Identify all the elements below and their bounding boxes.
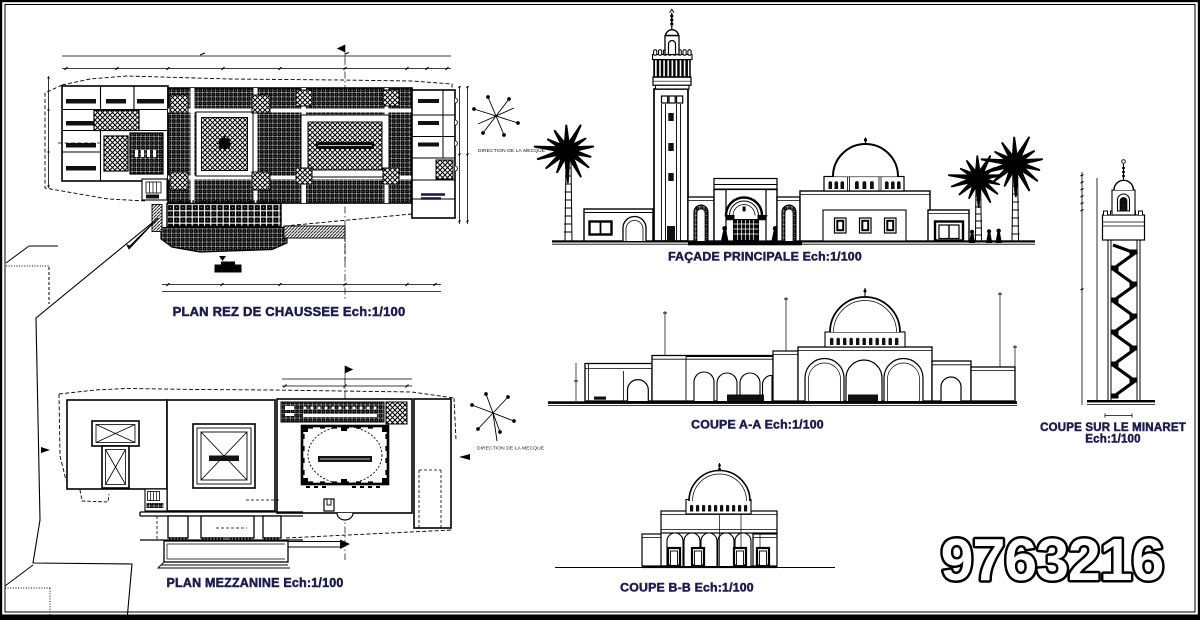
svg-text:9763216: 9763216	[941, 527, 1164, 593]
svg-text:Ech:1/100: Ech:1/100	[1085, 434, 1141, 446]
svg-text:DIRECTION DE LA MECQUE: DIRECTION DE LA MECQUE	[477, 446, 545, 452]
svg-text:FAÇADE PRINCIPALE Ech:1/100: FAÇADE PRINCIPALE Ech:1/100	[668, 250, 862, 264]
svg-text:PLAN REZ DE CHAUSSEE Ech:1/100: PLAN REZ DE CHAUSSEE Ech:1/100	[173, 304, 406, 319]
svg-text:COUPE A-A Ech:1/100: COUPE A-A Ech:1/100	[691, 418, 824, 432]
svg-text:COUPE B-B Ech:1/100: COUPE B-B Ech:1/100	[620, 581, 754, 595]
svg-text:DIRECTION DE LA MECQUE: DIRECTION DE LA MECQUE	[478, 148, 546, 154]
svg-text:COUPE SUR LE MINARET: COUPE SUR LE MINARET	[1040, 422, 1186, 434]
svg-text:PLAN MEZZANINE Ech:1/100: PLAN MEZZANINE Ech:1/100	[166, 576, 343, 590]
